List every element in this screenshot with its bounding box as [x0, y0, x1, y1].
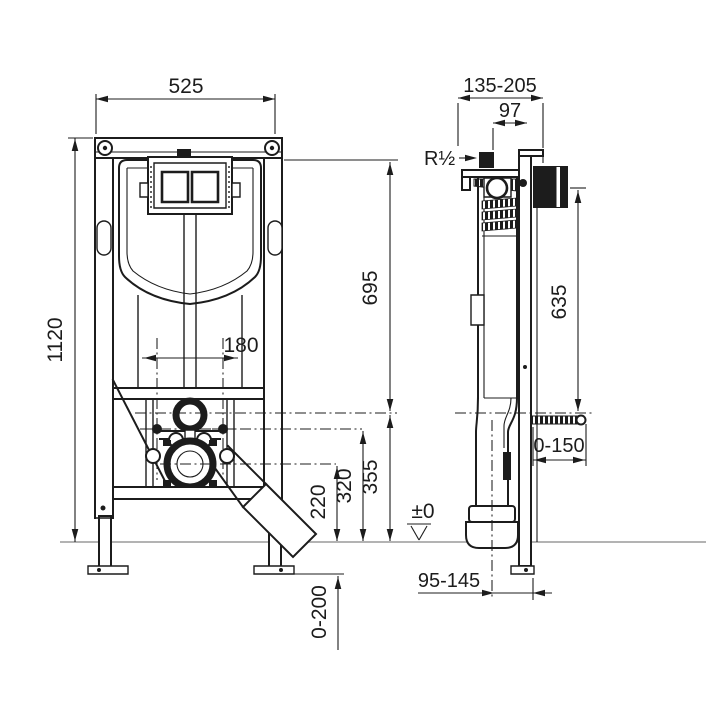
- datum-symbol: ±0: [407, 500, 435, 540]
- dim-floor-level: ±0: [411, 500, 434, 523]
- anchor-rod: [532, 416, 586, 425]
- plate-tab-right: [232, 183, 240, 197]
- flush-button-right: [192, 172, 218, 202]
- water-inlet: [479, 152, 494, 168]
- corner-bolt-right: [265, 141, 279, 155]
- mid-cross-bar: [113, 388, 264, 399]
- flush-pipe-port: [176, 401, 204, 429]
- dim-overall-width: 525: [168, 75, 203, 98]
- dim-220: 220: [307, 484, 330, 519]
- dim-rod-projection: 0-150: [533, 435, 584, 457]
- dim-depth-range: 135-205: [463, 75, 536, 97]
- dim-foot-adjust: 0-200: [308, 585, 331, 639]
- flush-plate: [140, 149, 240, 214]
- dim-flush-695: 695: [359, 270, 382, 305]
- wc-installation-frame-drawing: 525 1120 180 695 355 320 220 0-200: [0, 0, 720, 720]
- technical-drawing-page: 525 1120 180 695 355 320 220 0-200: [0, 0, 720, 720]
- dim-bolt-spacing: 180: [223, 334, 258, 357]
- bottom-cross-bar: [113, 487, 264, 499]
- rail-clip-left: [97, 221, 111, 255]
- dim-inlet-thread: R½: [424, 148, 455, 170]
- cistern-side: [471, 178, 517, 398]
- fill-valve: [487, 178, 507, 198]
- front-clip: [471, 295, 484, 325]
- dim-outlet-distance: 95-145: [418, 570, 480, 592]
- side-view: 135-205 97 R½ 635 0-150 ±0 95-145: [407, 75, 592, 600]
- actuator-box: [533, 166, 568, 208]
- plate-tab-left: [140, 183, 148, 197]
- flush-button-left: [162, 172, 188, 202]
- dim-actuator-height: 635: [548, 284, 571, 319]
- front-view: 525 1120 180 695 355 320 220 0-200: [44, 75, 398, 650]
- dim-overall-height: 1120: [44, 317, 67, 362]
- corner-bolt-left: [98, 141, 112, 155]
- rail-clip-right: [268, 221, 282, 255]
- dim-inlet-setback: 97: [499, 100, 521, 122]
